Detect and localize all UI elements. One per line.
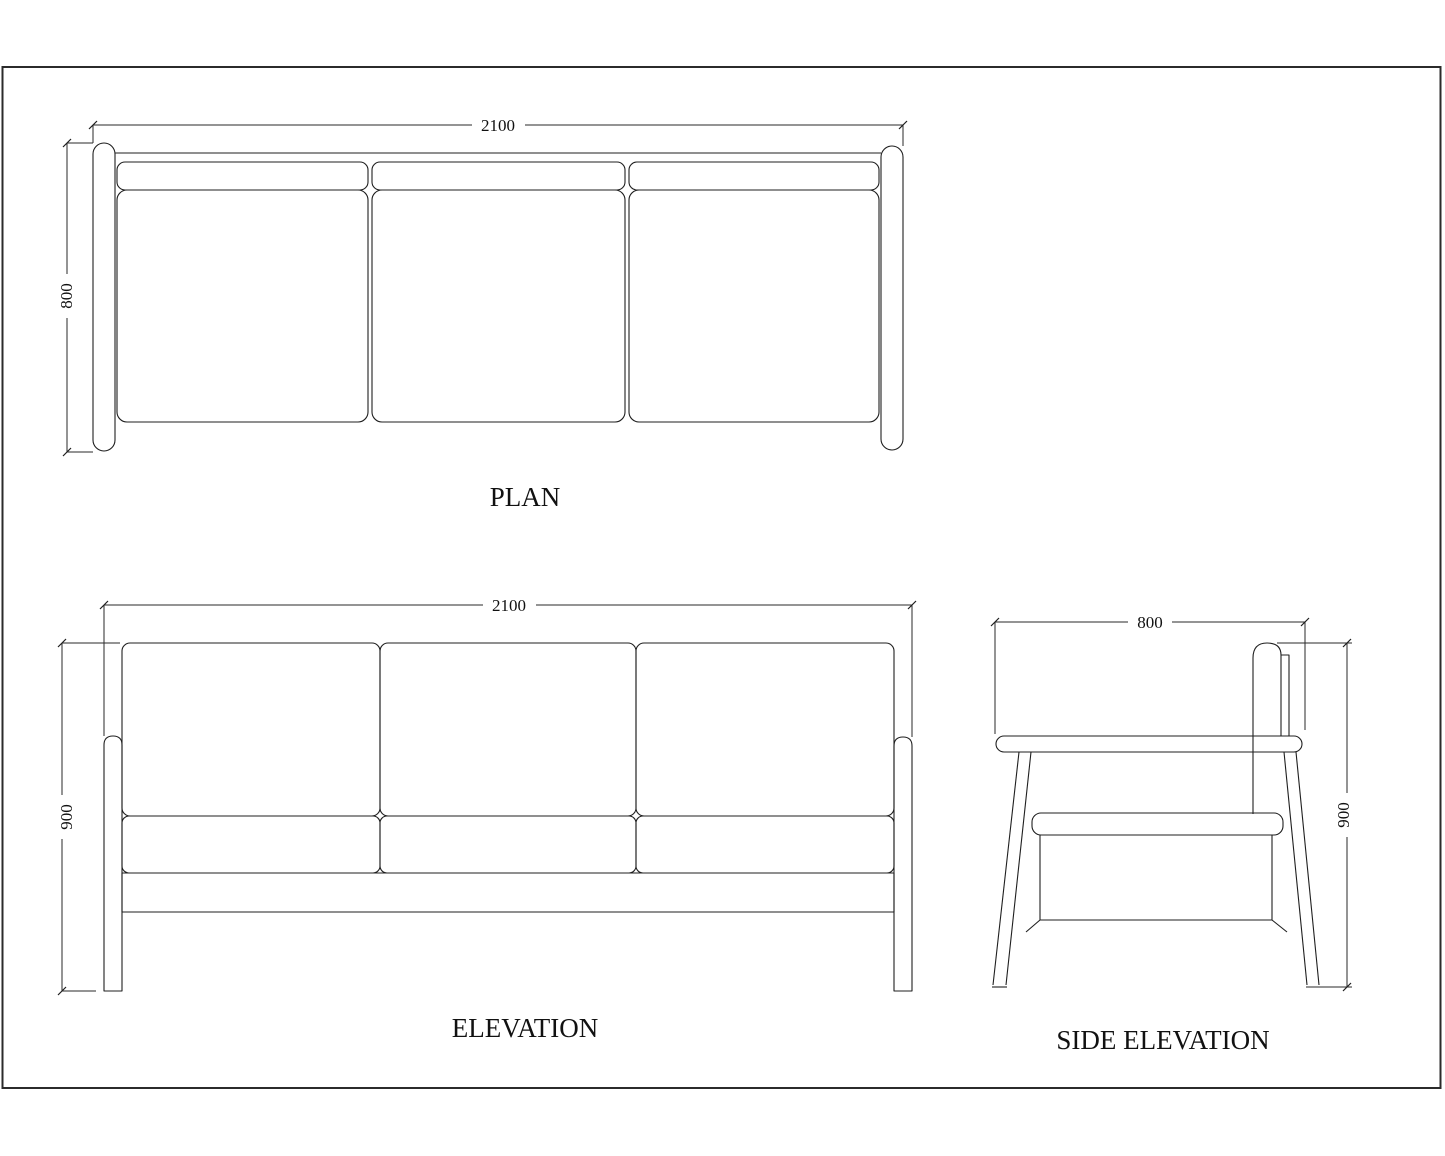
plan-seat-cushion	[117, 190, 368, 422]
plan-title: PLAN	[490, 482, 561, 512]
plan-back-cushion	[117, 162, 368, 190]
side-back-panel-edge	[1281, 655, 1289, 736]
elevation-seat-cushion	[636, 816, 894, 873]
elevation-seat-cushion	[380, 816, 636, 873]
side-lower-panel	[1272, 920, 1287, 932]
elevation-seat-cushion	[122, 816, 380, 873]
elevation-right-arm-post	[894, 737, 912, 991]
side-front-leg	[1006, 752, 1031, 985]
plan-right-armrest	[881, 146, 903, 450]
plan-view: 2100 800 PLAN	[57, 116, 907, 512]
side-seat	[1032, 813, 1283, 835]
side-height-dimension-label: 900	[1334, 802, 1353, 828]
side-rear-leg	[1284, 752, 1307, 985]
elevation-back-cushion	[122, 643, 380, 816]
elevation-width-dimension-label: 2100	[492, 596, 526, 615]
elevation-front-rail	[122, 873, 894, 912]
side-elevation-title: SIDE ELEVATION	[1056, 1025, 1269, 1055]
plan-depth-dimension-label: 800	[57, 283, 76, 309]
sofa-plan-outline	[93, 143, 903, 451]
plan-back-cushion	[372, 162, 625, 190]
elevation-width-dimension: 2100	[100, 596, 916, 737]
side-rear-leg	[1296, 752, 1319, 985]
elevation-height-dimension: 900	[57, 639, 120, 995]
side-depth-dimension-label: 800	[1137, 613, 1163, 632]
elevation-back-cushion	[636, 643, 894, 816]
side-armrest	[996, 736, 1302, 752]
side-elevation-view: 800 900 SIDE ELEVATION	[991, 613, 1353, 1055]
side-back-post	[1253, 643, 1281, 814]
drawing-border	[3, 67, 1441, 1088]
plan-left-armrest	[93, 143, 115, 451]
elevation-view: 2100 900 ELEVATION	[57, 596, 916, 1043]
plan-depth-dimension: 800	[57, 139, 93, 456]
technical-drawing-canvas: 2100 800 PLAN	[0, 0, 1445, 1156]
side-front-leg	[993, 752, 1019, 985]
plan-seat-cushion	[372, 190, 625, 422]
side-depth-dimension: 800	[991, 613, 1309, 734]
elevation-back-cushion	[380, 643, 636, 816]
plan-width-dimension: 2100	[89, 116, 907, 146]
side-lower-panel	[1026, 920, 1040, 932]
elevation-title: ELEVATION	[452, 1013, 598, 1043]
plan-back-cushion	[629, 162, 879, 190]
plan-seat-cushion	[629, 190, 879, 422]
elevation-height-dimension-label: 900	[57, 804, 76, 830]
plan-width-dimension-label: 2100	[481, 116, 515, 135]
drawing-sheet: 2100 800 PLAN	[0, 0, 1445, 1156]
side-height-dimension: 900	[1277, 639, 1353, 991]
sofa-side-outline	[992, 643, 1319, 987]
elevation-left-arm-post	[104, 736, 122, 991]
sofa-elevation-outline	[104, 643, 912, 991]
